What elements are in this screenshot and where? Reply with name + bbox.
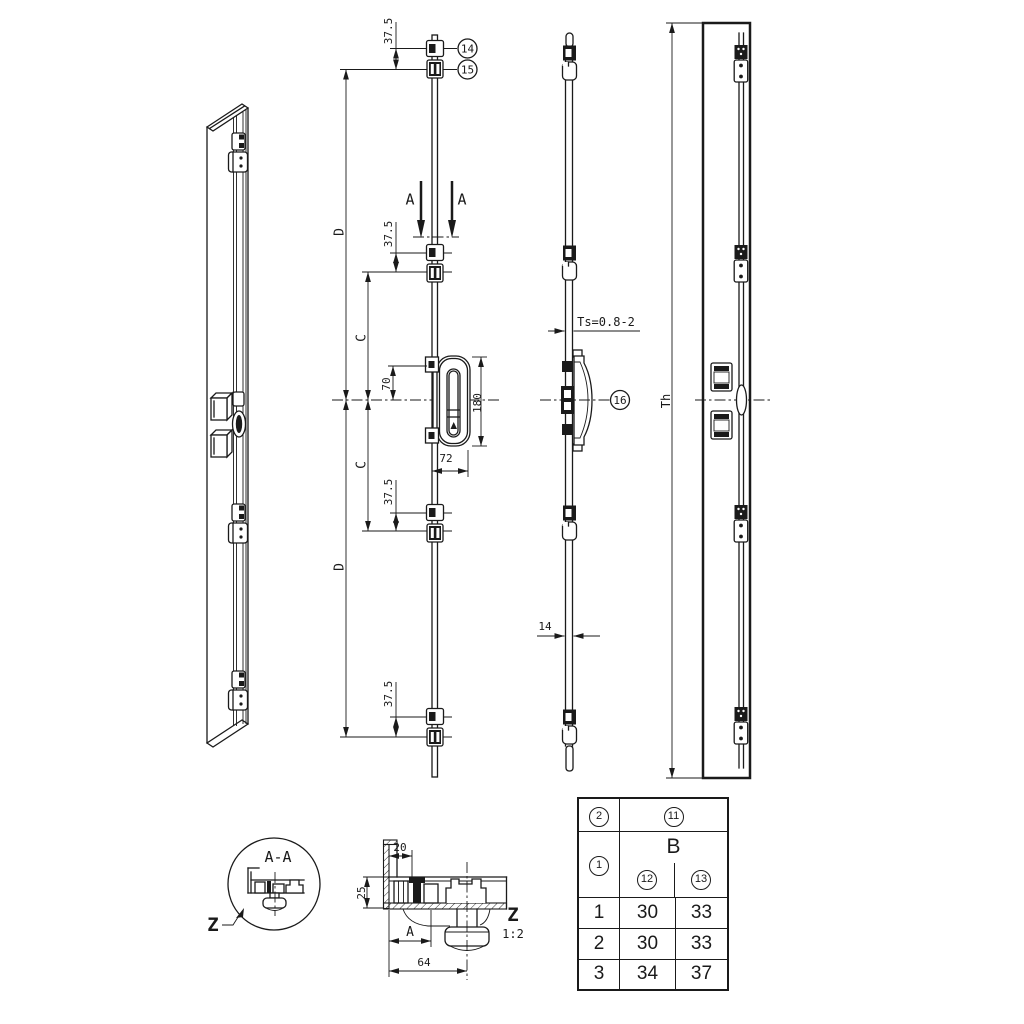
svg-text:C: C	[355, 461, 370, 469]
table-head-group: 11	[620, 798, 729, 831]
side-cam-top	[563, 46, 577, 81]
section-mushroom-cam	[403, 909, 490, 951]
dim-d-lower: D	[333, 400, 348, 737]
value-12: 34	[620, 959, 676, 990]
svg-text:14: 14	[461, 42, 475, 55]
svg-text:25: 25	[355, 886, 368, 899]
value-13: 37	[676, 959, 729, 990]
svg-text:D: D	[333, 228, 348, 236]
svg-text:37.5: 37.5	[382, 479, 395, 506]
section-label-a-left: A	[405, 190, 414, 208]
table-head-row: 1	[578, 831, 620, 897]
circled-1: 1	[589, 856, 609, 876]
circled-11: 11	[664, 807, 684, 827]
row-id: 2	[578, 928, 620, 959]
section-z-letter: Z	[507, 904, 518, 926]
row-id: 1	[578, 897, 620, 928]
svg-text:14: 14	[538, 620, 552, 633]
front-view: 37.5 37.5 37.5 37.5 D D C	[332, 18, 502, 777]
svg-text:D: D	[333, 563, 348, 571]
right-keeper-lower	[734, 505, 748, 542]
svg-text:A: A	[406, 925, 414, 940]
iso-hardware-mid	[229, 504, 248, 543]
svg-text:15: 15	[461, 63, 474, 76]
svg-text:Ts=0.8-2: Ts=0.8-2	[577, 315, 635, 329]
dim-c-upper: C	[355, 272, 370, 400]
svg-text:37.5: 37.5	[382, 221, 395, 248]
svg-text:72: 72	[439, 452, 452, 465]
right-cam-oval	[737, 385, 747, 415]
hardware-drawing: 37.5 37.5 37.5 37.5 D D C	[0, 0, 1024, 1024]
value-12: 30	[620, 928, 676, 959]
isometric-view	[207, 104, 248, 747]
table-row: 1 30 33	[578, 897, 728, 928]
value-13: 33	[676, 928, 729, 959]
circled-13: 13	[691, 870, 711, 890]
dim-ts: Ts=0.8-2	[548, 315, 640, 331]
side-cam-lower	[563, 506, 577, 541]
iso-cam-oval	[233, 392, 246, 437]
dim-37-5-lower: 37.5	[382, 479, 396, 531]
svg-text:20: 20	[393, 841, 406, 854]
detail-z: A-A Z	[207, 838, 320, 936]
spec-table: 2 11 1 B 12 13 1 30 3	[577, 797, 729, 991]
right-view: Th	[659, 23, 770, 778]
b-label: B	[620, 832, 727, 863]
dim-180: 180	[471, 357, 487, 446]
svg-text:C: C	[355, 334, 370, 342]
row-id: 3	[578, 959, 620, 990]
right-keeper-upper	[734, 245, 748, 282]
detail-title: A-A	[264, 848, 291, 866]
value-12: 30	[620, 897, 676, 928]
dim-th: Th	[659, 23, 703, 778]
svg-text:37.5: 37.5	[382, 18, 395, 45]
side-view: Ts=0.8-2 14 16	[537, 33, 640, 771]
side-cam-upper	[563, 246, 577, 281]
iso-hardware-bottom	[229, 671, 248, 710]
dim-c-lower: C	[355, 400, 370, 531]
dim-14: 14	[537, 620, 600, 636]
table-subhead-13: 13	[675, 863, 727, 897]
callout-15: 15	[458, 60, 477, 79]
table-head-b: B 12 13	[620, 831, 729, 897]
dim-20: 20	[389, 841, 412, 877]
dim-d-upper: D	[333, 70, 348, 401]
circled-12: 12	[637, 870, 657, 890]
right-keeper-bottom	[734, 707, 748, 744]
table-row: 2 30 33	[578, 928, 728, 959]
dim-70: 70	[380, 366, 427, 400]
section-z: 20 25 A 64 Z 1:2	[355, 840, 524, 980]
dim-37-5-bottom: 37.5	[382, 681, 396, 737]
side-cam-bottom	[563, 710, 577, 745]
dim-37-5-top: 37.5	[382, 18, 396, 70]
svg-text:37.5: 37.5	[382, 681, 395, 708]
svg-text:180: 180	[471, 393, 484, 413]
right-keeper-top	[734, 45, 748, 82]
dim-a: A	[389, 910, 431, 947]
svg-text:Th: Th	[659, 394, 673, 408]
value-13: 33	[676, 897, 729, 928]
table-head-item: 2	[578, 798, 620, 831]
dim-37-5-upper: 37.5	[382, 221, 396, 272]
table-subhead-12: 12	[620, 863, 675, 897]
iso-hardware-top	[229, 133, 248, 172]
section-z-scale: 1:2	[502, 927, 524, 941]
technical-drawing-page: 37.5 37.5 37.5 37.5 D D C	[0, 0, 1024, 1024]
svg-text:70: 70	[380, 377, 393, 390]
iso-striker-blocks	[211, 393, 232, 457]
callout-14: 14	[458, 39, 477, 58]
detail-z-letter: Z	[207, 914, 218, 936]
section-label-a-right: A	[457, 190, 466, 208]
table-row: 3 34 37	[578, 959, 728, 990]
circled-2: 2	[589, 807, 609, 827]
svg-text:16: 16	[613, 394, 626, 407]
svg-text:64: 64	[417, 956, 431, 969]
